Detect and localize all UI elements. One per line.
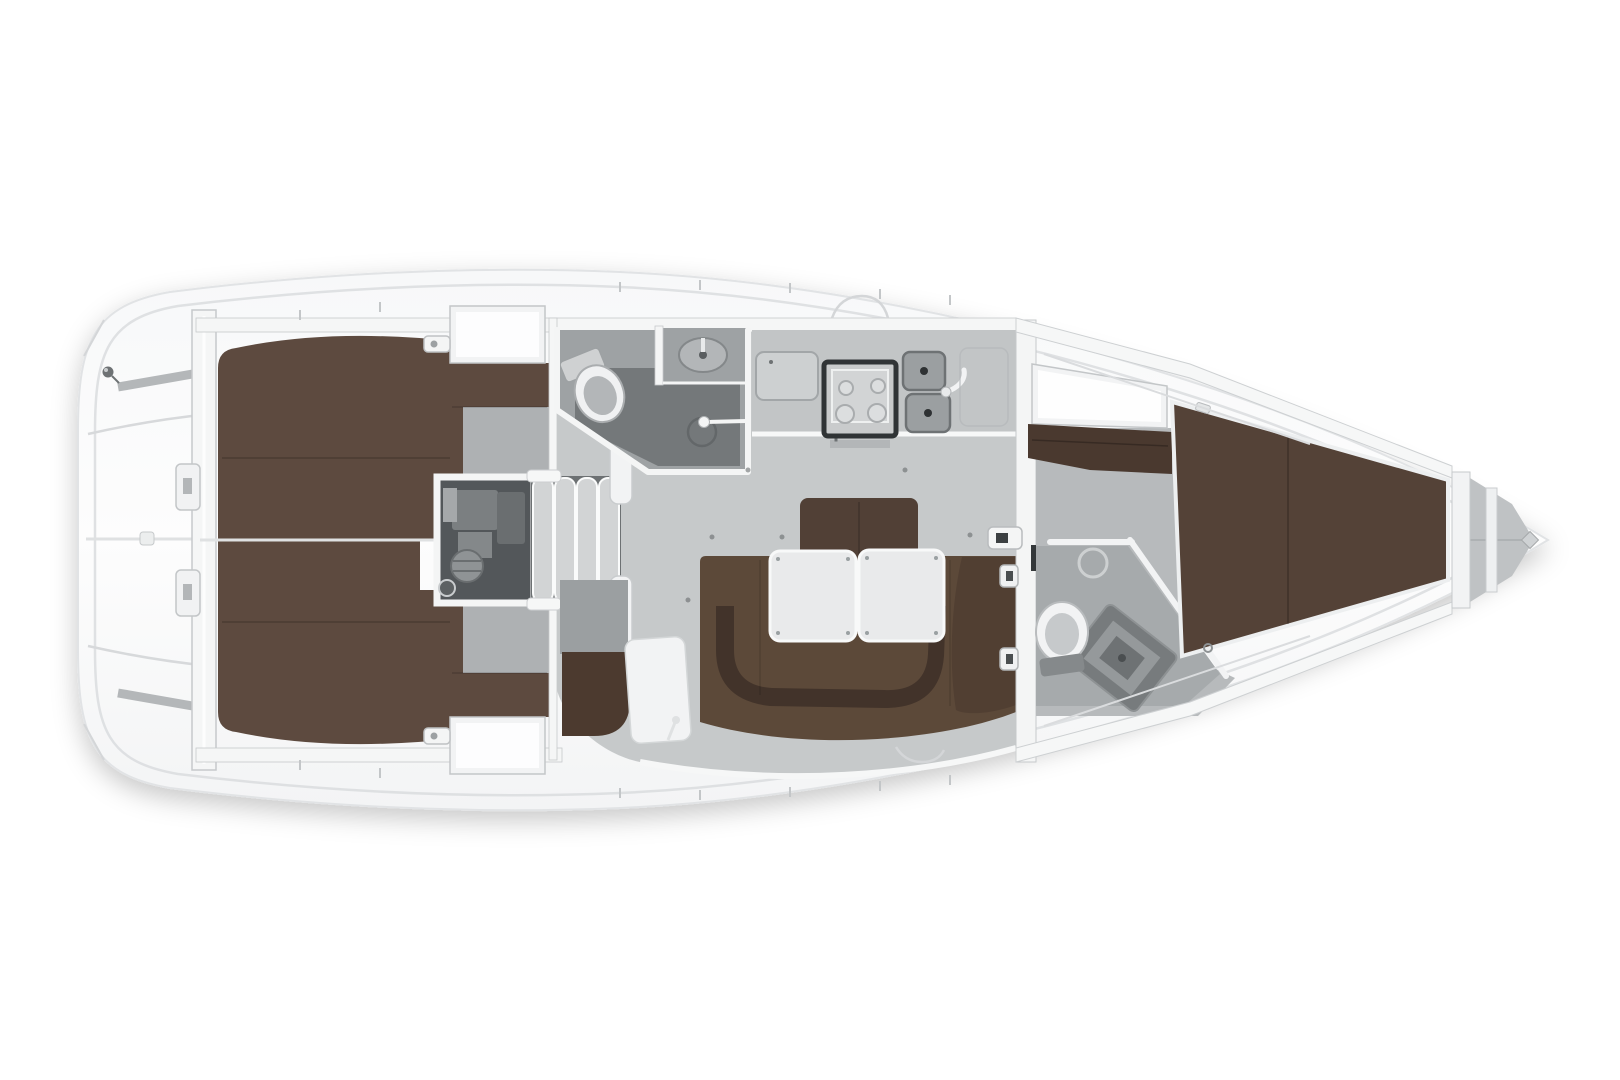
wet-locker-port-door bbox=[456, 312, 539, 357]
steps-cap-bottom bbox=[527, 598, 561, 610]
bulkhead-latch-bottom-slot bbox=[183, 584, 192, 600]
deck-fitting bbox=[103, 367, 114, 378]
door-handle-slot bbox=[996, 533, 1008, 543]
rod-joint bbox=[140, 532, 154, 545]
cabin-wall-starboard bbox=[549, 600, 557, 760]
icebox-lid bbox=[756, 352, 818, 400]
door-hinge-top-pin bbox=[1006, 571, 1013, 581]
folding-table-left bbox=[770, 551, 856, 641]
wet-locker-starboard-door bbox=[456, 723, 539, 768]
icebox-latch bbox=[769, 360, 773, 364]
chart-table bbox=[624, 636, 691, 744]
bow-partition-1 bbox=[1452, 472, 1470, 608]
engine-part-3 bbox=[443, 488, 457, 522]
engine-block bbox=[452, 490, 498, 530]
galley-faucet-base bbox=[941, 387, 951, 397]
yacht-floor-plan bbox=[0, 0, 1620, 1080]
berth-latch-port-knob bbox=[431, 341, 438, 348]
nav-seat bbox=[562, 652, 630, 736]
sink-drain-1 bbox=[920, 367, 928, 375]
burner-4 bbox=[868, 404, 886, 422]
forward-toilet-seat bbox=[1045, 613, 1079, 655]
shower-head-bar bbox=[706, 421, 746, 422]
bulkhead-latch-top-slot bbox=[183, 478, 192, 494]
nav-panel bbox=[560, 580, 628, 654]
burner-1 bbox=[839, 381, 853, 395]
engine-room bbox=[437, 477, 534, 603]
gimbaled-stove bbox=[824, 362, 896, 448]
aft-basin-drain bbox=[699, 351, 707, 359]
bow-partition-2 bbox=[1486, 488, 1497, 592]
burner-2 bbox=[871, 379, 885, 393]
burner-3 bbox=[836, 405, 854, 423]
steps-cap-top bbox=[527, 470, 561, 482]
deck-fitting-highlight bbox=[104, 368, 108, 372]
door-hinge-bottom-pin bbox=[1006, 654, 1013, 664]
v-berth bbox=[1172, 402, 1448, 656]
floor-plan-canvas bbox=[0, 0, 1620, 1080]
galley bbox=[752, 330, 1016, 448]
stove-vent bbox=[830, 440, 890, 448]
engine-filter bbox=[439, 580, 455, 596]
berth-latch-starboard-knob bbox=[431, 733, 438, 740]
step-1 bbox=[533, 478, 553, 602]
shower-head bbox=[699, 417, 710, 428]
folding-table-right bbox=[859, 550, 944, 641]
engine-part-1 bbox=[497, 492, 525, 544]
coachroof-wall-top bbox=[196, 318, 1016, 332]
anchor-locker bbox=[1452, 472, 1538, 608]
engine-pulley bbox=[451, 550, 483, 582]
sink-drain-2 bbox=[924, 409, 932, 417]
basin-alcove-wall bbox=[655, 326, 663, 385]
